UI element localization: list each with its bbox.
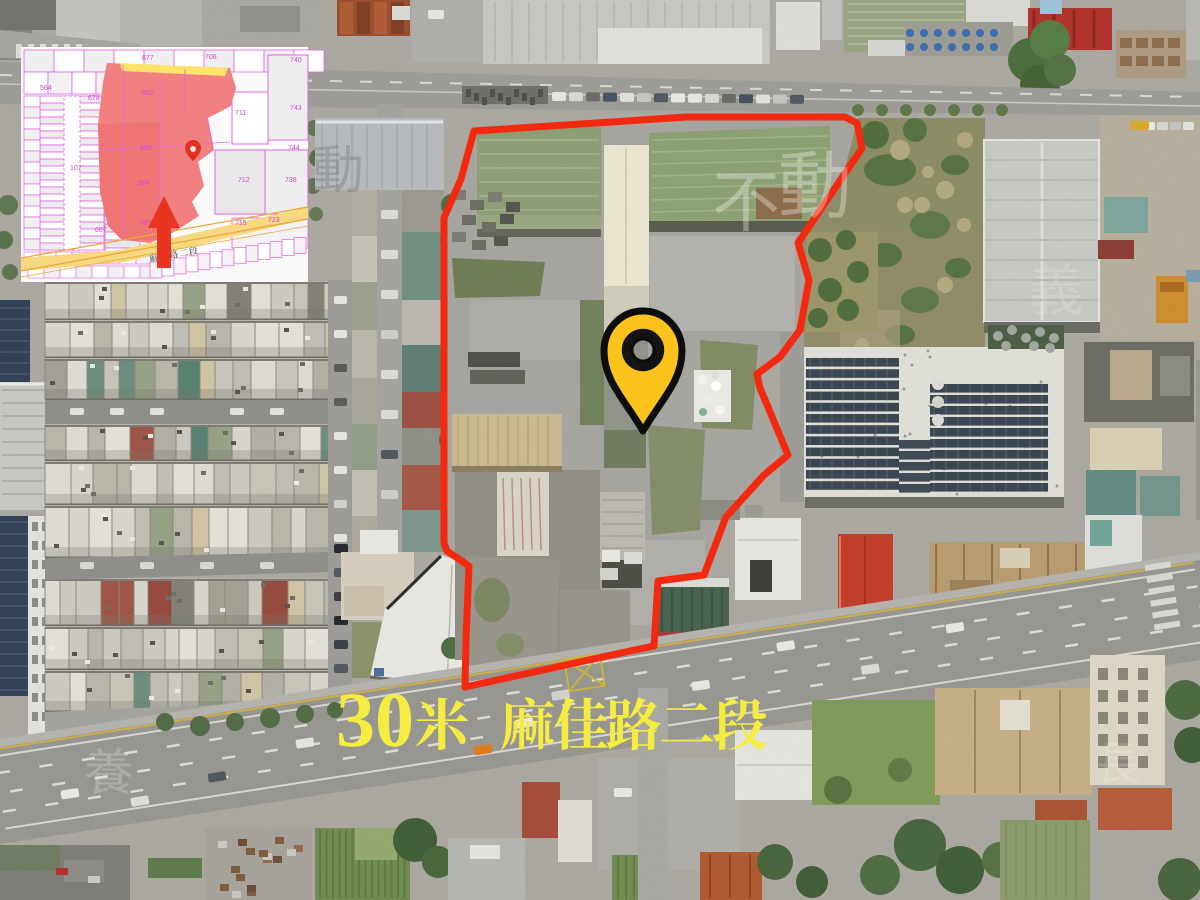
svg-text:564: 564 (40, 85, 52, 92)
svg-text:708: 708 (205, 54, 217, 61)
svg-text:687: 687 (95, 227, 107, 234)
svg-text:715: 715 (235, 220, 247, 227)
svg-text:738: 738 (285, 177, 297, 184)
svg-text:682: 682 (142, 90, 154, 97)
svg-text:712: 712 (238, 177, 250, 184)
svg-text:677: 677 (142, 55, 154, 62)
svg-text:743: 743 (290, 105, 302, 112)
svg-text:744: 744 (288, 145, 300, 152)
svg-text:711: 711 (235, 110, 246, 117)
svg-text:107: 107 (70, 165, 82, 172)
svg-text:684: 684 (138, 180, 150, 187)
svg-text:678: 678 (88, 95, 100, 102)
svg-text:723: 723 (268, 217, 280, 224)
svg-text:683: 683 (140, 145, 152, 152)
svg-text:740: 740 (290, 57, 302, 64)
